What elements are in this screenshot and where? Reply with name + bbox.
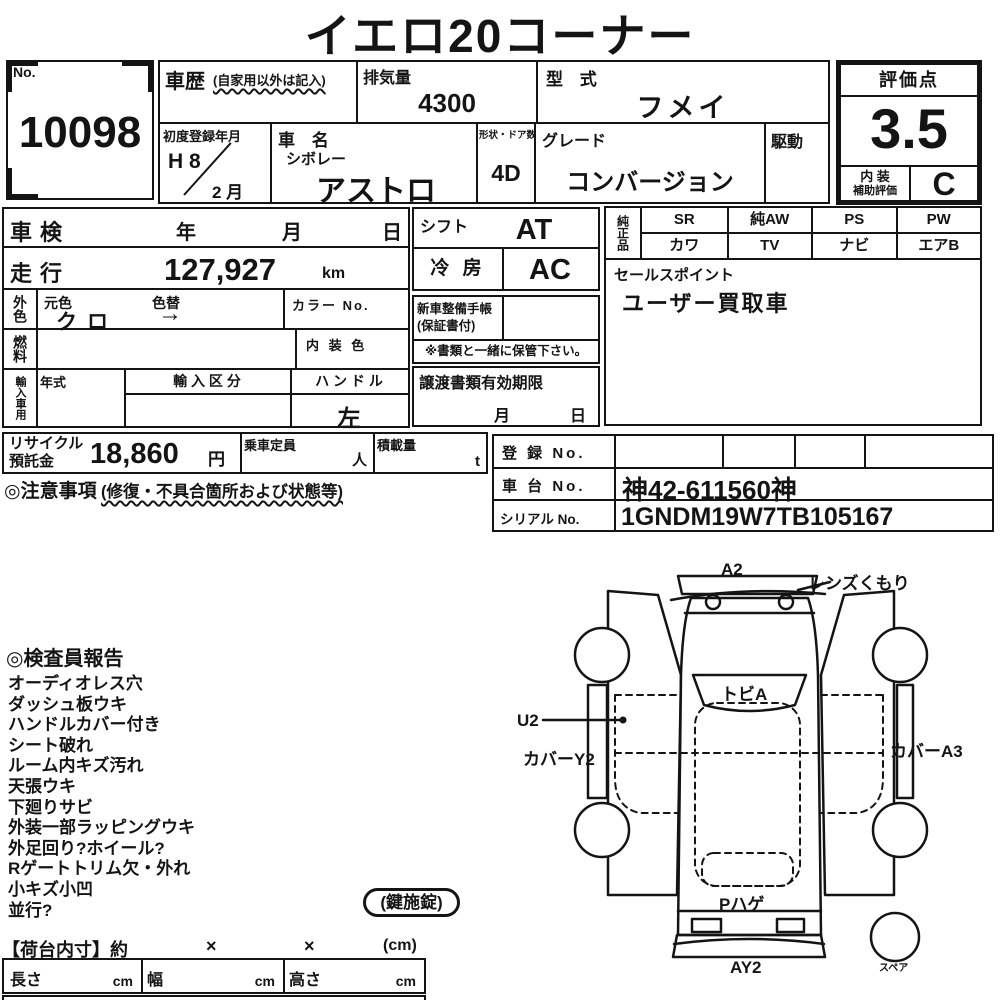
diagram-label-lens-fog: レンズくもり [808, 573, 910, 593]
import-class-cell: 輸 入 区 分 [124, 370, 292, 426]
cargo-table: 長さ cm 幅 cm 高さ cm [2, 958, 426, 994]
year-model-cell: 年式 [36, 370, 126, 426]
transfer-label: 譲渡書類有効期限 [419, 371, 543, 393]
sales-point-label: セールスポイント [614, 264, 734, 285]
import-class-label: 輸 入 区 分 [124, 370, 290, 395]
handle-cell: ハ ン ド ル 左 [290, 370, 408, 426]
first-registration-year: H 8 [168, 150, 201, 174]
displacement-cell: 排気量 4300 [356, 60, 538, 124]
mileage-unit: km [322, 265, 345, 283]
cargo-height-label: 高さ [289, 966, 321, 990]
cargo-x2: × [304, 936, 315, 957]
cell-divider [864, 436, 866, 467]
key-lock-stamp: (鍵施錠) [363, 888, 460, 917]
score-value: 3.5 [841, 97, 977, 165]
interior-grade-label-line2: 補助評価 [841, 185, 909, 198]
report-item: ハンドルカバー付き [8, 715, 195, 736]
report-item: 外装一部ラッピングウキ [8, 818, 195, 839]
fuel-row: 燃料 内 装 色 [2, 328, 410, 370]
report-item: 小キズ小凹 [8, 880, 195, 901]
load-label: 積載量 [377, 435, 416, 454]
shaken-year: 年 [176, 216, 196, 245]
capacity-unit: 人 [352, 449, 367, 470]
cargo-length-cell: 長さ cm [4, 960, 143, 992]
shaken-day: 日 [382, 216, 402, 245]
interior-grade-value: C [911, 167, 977, 204]
caution-label: ◎注意事項 [4, 481, 97, 502]
oem-label: 純正品 [606, 208, 642, 258]
transfer-box: 譲渡書類有効期限 月 日 [412, 366, 600, 427]
u2-marker-dot [620, 717, 627, 724]
right-front-wheel [873, 628, 927, 682]
grade-cell: グレード コンバージョン [534, 122, 766, 204]
first-registration-cell: 初度登録年月 H 8 2 月 [158, 122, 272, 204]
car-model: アストロ [316, 166, 436, 210]
recycle-unit: 円 [208, 445, 225, 470]
ac-row: 冷 房 AC [412, 247, 600, 291]
service-book-line1: 新車整備手帳 [417, 301, 502, 318]
diagram-label-u2: U2 [517, 711, 539, 730]
spare-tire [871, 913, 919, 961]
service-note-row: ※書類と一緒に保管下さい。 [412, 339, 600, 364]
mileage-row: 走行 127,927 km [2, 246, 410, 290]
cargo-width-label: 幅 [147, 966, 163, 990]
caution-note: (修復・不具合箇所および状態等) [101, 483, 343, 501]
sales-point-box: セールスポイント ユーザー買取車 [604, 258, 982, 426]
diagram-label-tobi-a: トビA [721, 685, 767, 704]
oem-cell-aw: 純AW [727, 208, 812, 234]
score-box: 評価点 3.5 内 装 補助評価 C [836, 60, 982, 205]
cargo-width-unit: cm [255, 973, 275, 989]
interior-grade-label: 内 装 補助評価 [841, 167, 911, 204]
oem-cell-tv: TV [727, 234, 812, 258]
recycle-row: リサイクル 預託金 18,860 円 乗車定員 人 積載量 t [2, 432, 488, 474]
capacity-label: 乗車定員 [244, 435, 296, 454]
serial-no-label: シリアル No. [500, 508, 579, 528]
first-registration-month: 2 月 [212, 178, 243, 203]
cargo-x1: × [206, 936, 217, 957]
ac-label: 冷 房 [414, 249, 504, 289]
grade-label: グレード [542, 127, 606, 151]
shift-value: AT [474, 214, 594, 247]
lot-number-value: 10098 [8, 108, 152, 158]
lot-number-label: No. [13, 64, 36, 80]
recycle-value: 18,860 [90, 438, 179, 471]
mileage-label: 走行 [10, 256, 70, 288]
cell-divider [295, 330, 297, 368]
grade-value: コンバージョン [536, 162, 764, 197]
rear-bumper-trim-line [674, 939, 824, 944]
diagram-label-cover-a3: カバーA3 [890, 742, 963, 761]
left-rocker-strip [588, 685, 607, 798]
diagram-label-ay2: AY2 [730, 958, 762, 977]
right-rear-wheel [873, 803, 927, 857]
report-item: Rゲートトリム欠・外れ [8, 859, 195, 880]
interior-color-label: 内 装 色 [306, 335, 367, 354]
year-model-label: 年式 [40, 372, 66, 391]
service-book-label: 新車整備手帳 (保証書付) [414, 297, 504, 339]
chassis-no-label: 車 台 No. [502, 475, 586, 496]
auction-sheet: イエロ20コーナー No. 10098 車歴 (自家用以外は記入) 排気量 43… [0, 0, 1000, 1000]
cell-divider [614, 469, 616, 501]
chassis-no-row: 車 台 No. 神42-611560神 [494, 467, 992, 501]
handle-label: ハ ン ド ル [290, 370, 408, 395]
oem-cell-kawa: カワ [642, 234, 727, 258]
handle-value: 左 [290, 399, 408, 433]
corner-bracket [6, 168, 38, 200]
shaken-row: 車検 年 月 日 [2, 207, 410, 248]
vehicle-diagram: A2 レンズくもり トビA U2 カバーY2 カバーA3 Pハゲ AY2 スペア [505, 553, 980, 1000]
report-item: 下廻りサビ [8, 798, 195, 819]
service-book-line2: (保証書付) [417, 318, 502, 334]
service-book-box: 新車整備手帳 (保証書付) [412, 295, 600, 341]
history-note: (自家用以外は記入) [213, 70, 326, 89]
oem-cell-navi: ナビ [811, 234, 896, 258]
history-label: 車歴 [165, 65, 205, 94]
displacement-label: 排気量 [363, 64, 411, 88]
cargo-width-cell: 幅 cm [141, 960, 285, 992]
caution-line: ◎注意事項 (修復・不具合箇所および状態等) [4, 476, 343, 503]
serial-no-row: シリアル No. 1GNDM19W7TB105167 [494, 499, 992, 532]
import-label: 輸入車用 [4, 370, 38, 426]
diagram-label-spare: スペア [879, 962, 908, 974]
cargo-length-unit: cm [113, 973, 133, 989]
color-change-value: → [158, 300, 182, 328]
report-item: オーディオレス穴 [8, 674, 195, 695]
inspector-report-list: オーディオレス穴 ダッシュ板ウキ ハンドルカバー付き シート破れ ルーム内キズ汚… [8, 674, 195, 921]
report-item: ダッシュ板ウキ [8, 695, 195, 716]
cell-divider [794, 436, 796, 467]
cargo-height-unit: cm [396, 973, 416, 989]
page-title: イエロ20コーナー [305, 0, 696, 66]
transfer-day: 日 [570, 402, 586, 426]
cargo-length-label: 長さ [10, 966, 42, 990]
registration-table: 登 録 No. 車 台 No. 神42-611560神 シリアル No. 1GN… [492, 434, 994, 532]
cell-divider [614, 501, 616, 532]
cargo-table-next-row [2, 995, 426, 1000]
import-row: 輸入車用 年式 輸 入 区 分 ハ ン ド ル 左 [2, 368, 410, 428]
shaken-label: 車検 [10, 215, 70, 247]
cargo-heading-row: 【荷台内寸】約 × × (cm) [2, 936, 432, 958]
recycle-cell: リサイクル 預託金 18,860 円 [4, 434, 242, 472]
displacement-value: 4300 [358, 88, 536, 119]
shaken-month: 月 [282, 216, 302, 245]
score-label: 評価点 [841, 65, 977, 97]
shift-label: シフト [420, 213, 468, 237]
model-code-value: フメイ [538, 86, 828, 125]
drive-cell: 駆動 [764, 122, 830, 204]
report-item: 並行? [8, 901, 195, 922]
cell-divider [614, 436, 616, 467]
oem-grid: 純正品 SR 純AW PS PW カワ TV ナビ エアB [604, 206, 982, 260]
transfer-month: 月 [494, 402, 510, 426]
reg-no-label: 登 録 No. [502, 442, 586, 463]
oem-cell-ps: PS [811, 208, 896, 234]
diagram-label-a2: A2 [721, 560, 743, 579]
model-code-cell: 型 式 フメイ [536, 60, 830, 124]
shift-cell: シフト AT [412, 207, 600, 249]
shape-doors-cell: 形状・ドア数 4D [476, 122, 536, 204]
mileage-value: 127,927 [114, 252, 326, 288]
inspector-report-heading: ◎検査員報告 [6, 642, 123, 671]
drive-label: 駆動 [771, 128, 803, 152]
shape-doors-value: 4D [478, 160, 534, 187]
corner-bracket [122, 60, 154, 92]
ac-value: AC [502, 254, 598, 287]
sales-point-value: ユーザー買取車 [622, 286, 790, 318]
diagram-label-p-hage: Pハゲ [719, 894, 764, 914]
load-unit: t [475, 453, 480, 470]
oem-cell-sr: SR [642, 208, 727, 234]
exterior-color-row: 外色 元色 クロ 色替 → カラー No. [2, 288, 410, 330]
cell-divider [283, 290, 285, 328]
cargo-height-cell: 高さ cm [283, 960, 424, 992]
oem-cell-pw: PW [896, 208, 981, 234]
car-name-cell: 車 名 シボレー アストロ [270, 122, 478, 204]
report-item: 天張ウキ [8, 777, 195, 798]
report-item: ルーム内キズ汚れ [8, 756, 195, 777]
cargo-unit: (cm) [383, 937, 417, 955]
interior-grade-row: 内 装 補助評価 C [841, 165, 977, 204]
diagram-label-cover-y2: カバーY2 [523, 750, 595, 769]
report-item: シート破れ [8, 736, 195, 757]
history-cell: 車歴 (自家用以外は記入) [158, 60, 358, 124]
lot-number-box: No. 10098 [6, 60, 154, 200]
oem-cell-airb: エアB [896, 234, 981, 258]
interior-grade-label-line1: 内 装 [841, 169, 909, 185]
reg-no-row: 登 録 No. [494, 436, 992, 467]
report-item: 外足回り?ホイール? [8, 839, 195, 860]
load-cell: 積載量 t [373, 434, 486, 472]
shape-doors-label: 形状・ドア数 [479, 127, 536, 141]
cell-divider [722, 436, 724, 467]
serial-no-value: 1GNDM19W7TB105167 [621, 503, 893, 532]
left-front-wheel [575, 628, 629, 682]
capacity-cell: 乗車定員 人 [240, 434, 375, 472]
fuel-label: 燃料 [4, 330, 38, 368]
color-no-label: カラー No. [292, 295, 370, 314]
left-rear-wheel [575, 803, 629, 857]
exterior-color-label: 外色 [4, 290, 38, 328]
